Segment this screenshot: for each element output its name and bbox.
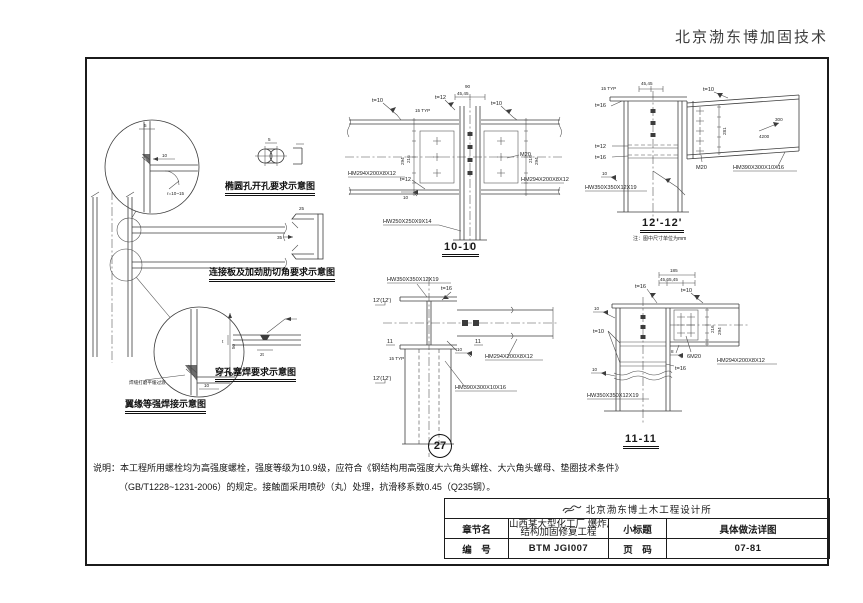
weld-t16-top: t=16 bbox=[595, 103, 606, 109]
firm-logo bbox=[562, 503, 582, 514]
notes-line2: （GB/T1228~1231-2006）的规定。接触面采用喷砂（丸）处理，抗滑移… bbox=[93, 478, 624, 497]
weld-t16-stiffener: t=16 bbox=[675, 366, 686, 372]
caption-plug-weld: 穿孔塞焊要求示意图 bbox=[215, 365, 296, 382]
detail1-dim-10: 10 bbox=[162, 153, 168, 158]
weld-t10: t=10 bbox=[703, 87, 714, 93]
dim-216: 216 bbox=[710, 325, 715, 333]
subtitle-value: 具体做法详图 bbox=[667, 519, 830, 539]
title-10-10: 10-10 bbox=[442, 241, 479, 257]
weld-t10-top: t=10 bbox=[681, 288, 692, 294]
dim-294-right: 294 bbox=[534, 157, 539, 165]
plug-dim-2t: 2t bbox=[260, 352, 265, 357]
bolt-m20: M20 bbox=[520, 152, 531, 158]
beam-left-label: HM294X200X8X12 bbox=[348, 171, 396, 177]
weld-size-10-b: 10 bbox=[592, 367, 598, 372]
section-mark-12-top: 12'(12') bbox=[373, 298, 391, 304]
chapter-label: 章节名 bbox=[445, 519, 509, 539]
caption-plate-cut: 连接板及加劲肋切角要求示意图 bbox=[209, 265, 335, 282]
weld-size-8: 8 bbox=[671, 349, 674, 354]
section-mark-11-left: 11 bbox=[387, 339, 393, 345]
bolt-m20: M20 bbox=[696, 165, 707, 171]
title-block: 北京渤东博土木工程设计所 章节名 山西某大型化工厂 爆炸后 结构加固修复工程 小… bbox=[444, 498, 830, 559]
oval-dim: 5 bbox=[268, 137, 271, 142]
company-watermark: 北京渤东博加固技术 bbox=[0, 26, 828, 47]
dim-45-65-45: 45,65,45 bbox=[660, 277, 678, 282]
weld-t10-left: t=10 bbox=[372, 98, 383, 104]
column-label: HW350X350X12X19 bbox=[585, 185, 637, 191]
weld-t16-top: t=16 bbox=[635, 284, 646, 290]
dim-216-left: 216 bbox=[406, 155, 411, 163]
drawing-frame: 5 10 r=10~15 bbox=[85, 57, 829, 566]
dim-45-45: 45,45 bbox=[457, 91, 469, 96]
beam-label: HM294X200X8X12 bbox=[717, 358, 765, 364]
oval-hole-schematic: 5 bbox=[255, 137, 304, 166]
dim-294: 294 bbox=[717, 327, 722, 335]
typ-note: 15 TYP bbox=[389, 356, 404, 361]
notes-line1: 说明：本工程所用螺栓均为高强度螺栓，强度等级为10.9级，应符合《钢结构用高强度… bbox=[93, 463, 624, 473]
beam-right-label: HM294X200X8X12 bbox=[521, 177, 569, 183]
plan-node-27: HW350X350X12X19 t=16 12'(12') 12'(12') 1… bbox=[373, 277, 557, 457]
general-notes: 说明：本工程所用螺栓均为高强度螺栓，强度等级为10.9级，应符合《钢结构用高强度… bbox=[93, 459, 624, 497]
column-label: HW350X350X12X19 bbox=[587, 393, 639, 399]
beam-label: HM390X300X10X16 bbox=[733, 165, 784, 171]
beam-down-label: HM390X300X10X16 bbox=[455, 385, 506, 391]
column-label: HW250X250X9X14 bbox=[383, 219, 432, 225]
section-12-12: 281 45,45 15 TYP t=10 t=16 t=12 t=16 10 … bbox=[585, 81, 799, 221]
plug-dim-t: t bbox=[222, 339, 224, 344]
weld-t12-top: t=12 bbox=[435, 95, 446, 101]
subtitle-label: 小标题 bbox=[609, 519, 667, 539]
dim-45-45: 45,45 bbox=[641, 81, 653, 86]
weld-size-10: 10 bbox=[457, 347, 463, 352]
weld-t10-stiffener: t=10 bbox=[593, 329, 604, 335]
weld-size-10-a: 10 bbox=[594, 306, 600, 311]
detail2-weld-note: 焊缝打磨平缓过渡 bbox=[129, 379, 166, 386]
weld-size-10: 10 bbox=[403, 195, 409, 200]
chapter-value: 山西某大型化工厂 爆炸后 结构加固修复工程 bbox=[509, 519, 609, 539]
plate-dim-25: 25 bbox=[299, 206, 305, 211]
firm-row: 北京渤东博土木工程设计所 bbox=[445, 499, 830, 519]
section-10-10: 294 216 216 294 45,45 90 t=10 15 TYP t=1… bbox=[345, 84, 569, 249]
dim-281: 281 bbox=[722, 127, 727, 135]
note-12-12: 注：图中尺寸单位为mm bbox=[633, 235, 686, 242]
typ-note: 15 TYP bbox=[601, 86, 616, 91]
dim-185: 185 bbox=[670, 268, 678, 273]
detail2-dim-50: 50 bbox=[231, 343, 236, 349]
drawing-number: BTM JGI007 bbox=[509, 539, 609, 559]
detail1-radius-label: r=10~15 bbox=[167, 191, 185, 196]
flange-weld-detail: 5 10 r=10~15 bbox=[105, 120, 199, 214]
drawing-sheet: 北京渤东博加固技术 5 bbox=[0, 0, 863, 603]
section-mark-12-bottom: 12'(12') bbox=[373, 376, 391, 382]
plate-cut-schematic: 35 25 bbox=[277, 206, 323, 259]
bolt-6m20: 6M20 bbox=[687, 354, 701, 360]
dim-294-left: 294 bbox=[400, 157, 405, 165]
typ-note: 15 TYP bbox=[415, 108, 430, 113]
weld-t12-bottom: t=12 bbox=[400, 177, 411, 183]
caption-flange-weld: 翼缘等强焊接示意图 bbox=[125, 397, 206, 414]
column-label: HW350X350X12X19 bbox=[387, 277, 439, 283]
weld-t12: t=12 bbox=[595, 144, 606, 150]
detail1-dim-5: 5 bbox=[144, 123, 147, 128]
dim-90: 90 bbox=[465, 84, 471, 89]
flange-weld-detail-2: 50 10 焊缝打磨平缓过渡 bbox=[129, 307, 245, 397]
section-mark-11-right: 11 bbox=[475, 339, 481, 345]
node-bubble-27: 27 bbox=[428, 434, 452, 458]
detail2-dim-10: 10 bbox=[204, 383, 210, 388]
page-number: 07-81 bbox=[667, 539, 830, 559]
weld-t16-mid: t=16 bbox=[595, 155, 606, 161]
title-12-12: 12'-12' bbox=[640, 217, 684, 233]
slope-run: 4200 bbox=[759, 134, 770, 139]
caption-oval-hole: 椭圆孔开孔要求示意图 bbox=[225, 179, 315, 196]
weld-t10-right: t=10 bbox=[491, 101, 502, 107]
plate-dim-35: 35 bbox=[277, 235, 283, 240]
number-label: 编 号 bbox=[445, 539, 509, 559]
firm-name: 北京渤东博土木工程设计所 bbox=[586, 506, 712, 516]
section-11-11: 185 45,65,45 bbox=[587, 268, 777, 425]
page-label: 页 码 bbox=[609, 539, 667, 559]
project-name-line2: 结构加固修复工程 bbox=[520, 527, 596, 538]
weld-t16: t=16 bbox=[441, 286, 452, 292]
beam-right-label: HM294X200X8X12 bbox=[485, 354, 533, 360]
slope-rise: 300 bbox=[775, 117, 783, 122]
title-11-11: 11-11 bbox=[623, 433, 659, 449]
weld-size-10: 10 bbox=[602, 171, 608, 176]
